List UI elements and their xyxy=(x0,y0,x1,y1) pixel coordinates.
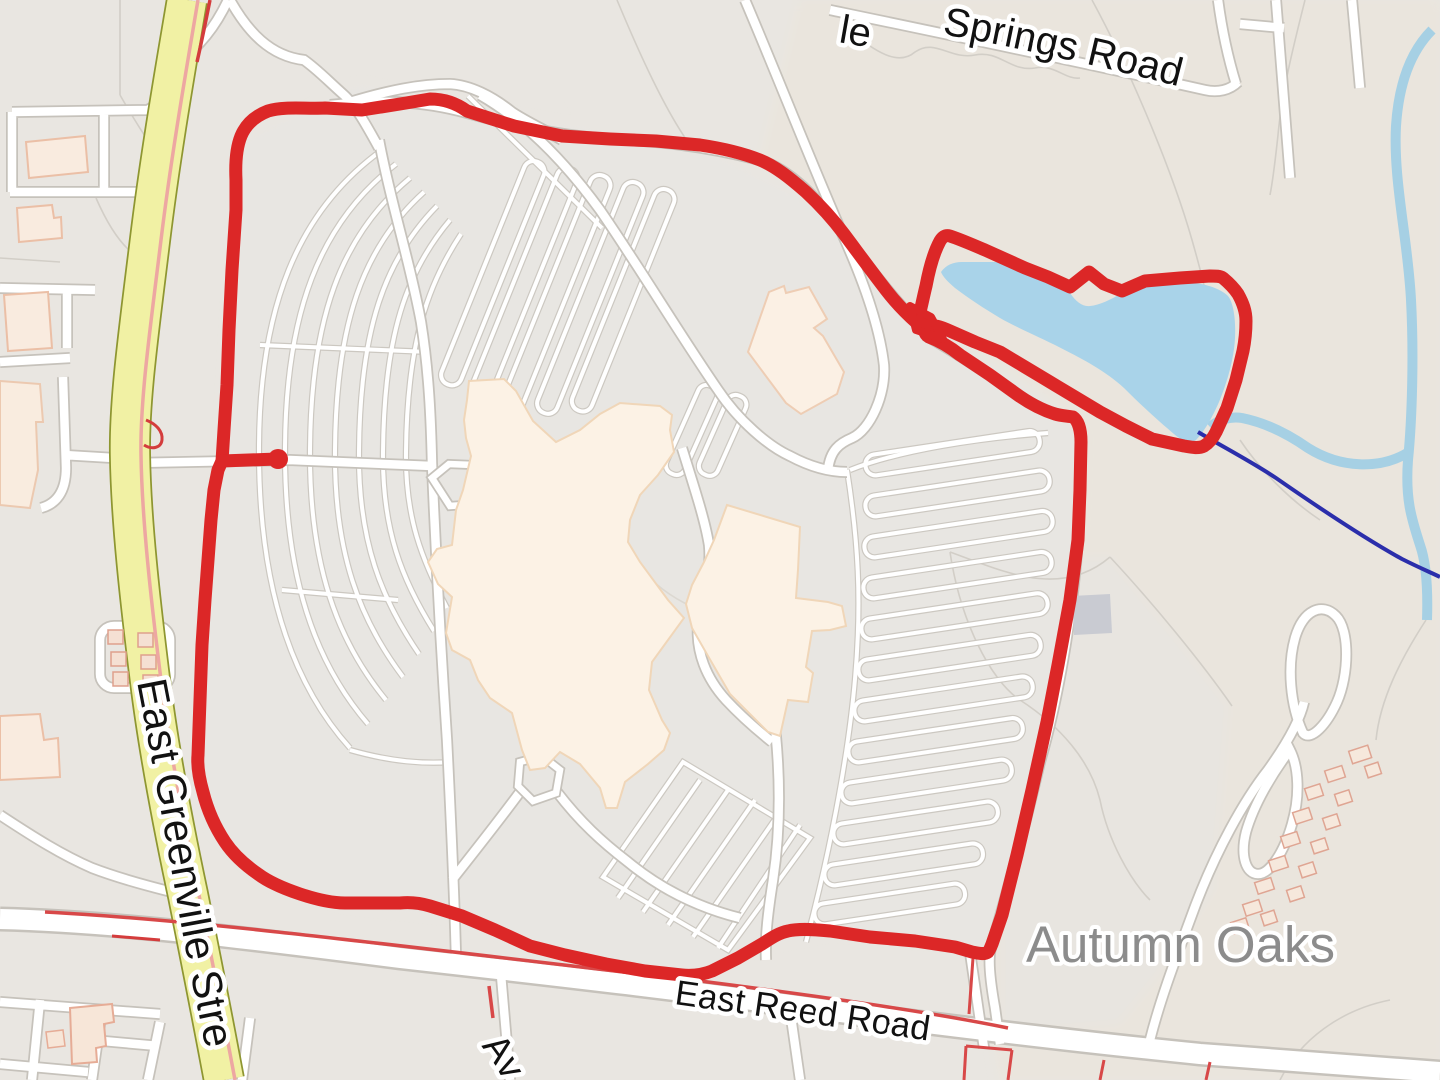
svg-text:Autumn Oaks: Autumn Oaks xyxy=(1026,916,1335,973)
